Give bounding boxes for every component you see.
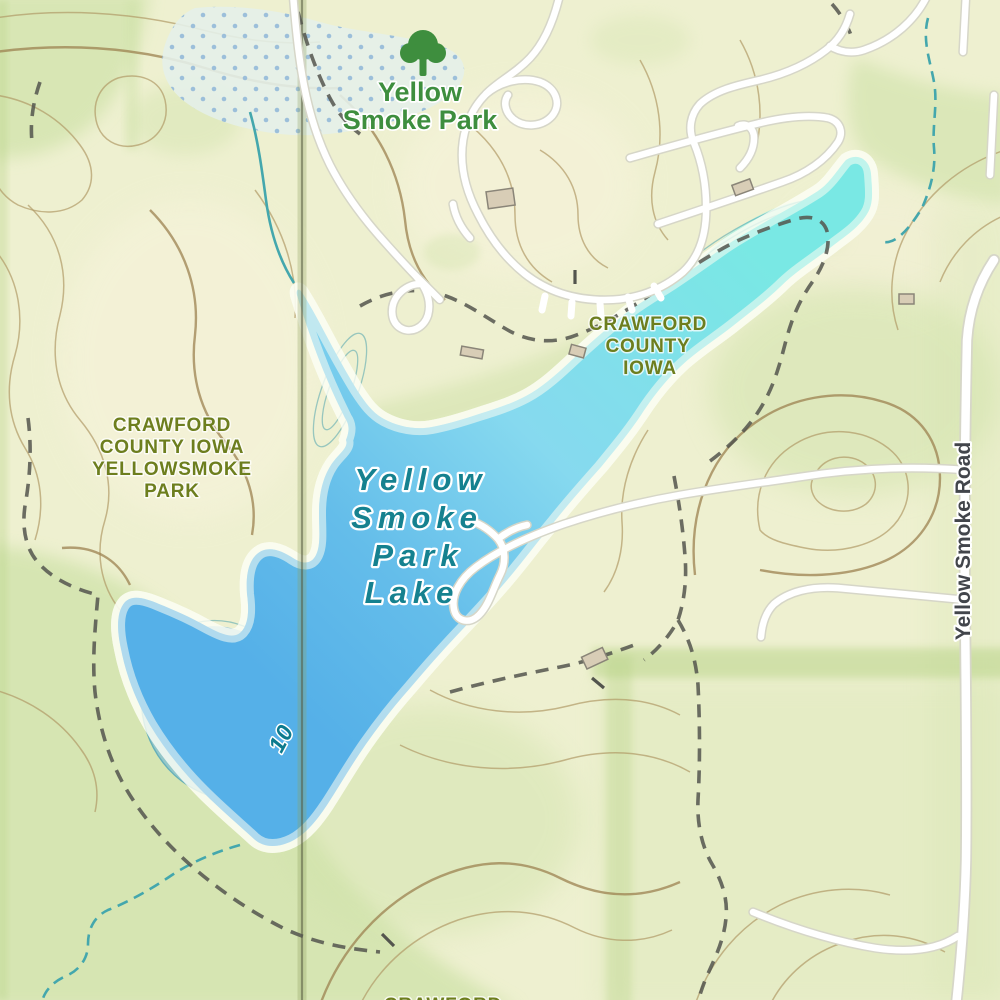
park-name-label-line1: Yellow bbox=[378, 77, 463, 107]
map-canvas[interactable]: Yellow Smoke Park CRAWFORD COUNTY IOWA C… bbox=[0, 0, 1000, 1000]
road-name-label: Yellow Smoke Road bbox=[952, 442, 975, 640]
county-west-label-line4: PARK bbox=[144, 481, 200, 502]
topo-map: Yellow Smoke Park CRAWFORD COUNTY IOWA C… bbox=[0, 0, 1000, 1000]
building bbox=[899, 294, 914, 304]
county-ne-label-line3: IOWA bbox=[623, 358, 677, 379]
county-south-label-partial: CRAWFORD bbox=[384, 995, 502, 1000]
county-west-label-line1: CRAWFORD bbox=[113, 415, 231, 436]
county-ne-label-line1: CRAWFORD bbox=[589, 314, 707, 335]
building-shelter bbox=[486, 188, 515, 209]
park-name-label-line2: Smoke Park bbox=[343, 105, 499, 135]
lake-name-label-line1: Yellow bbox=[354, 462, 487, 497]
county-west-label-line2: COUNTY IOWA bbox=[100, 437, 245, 458]
lake-name-label-line4: Lake bbox=[365, 575, 460, 610]
lake-name-label-line3: Park bbox=[372, 538, 463, 573]
county-ne-label-line2: COUNTY bbox=[605, 336, 690, 357]
lake-name-label-line2: Smoke bbox=[351, 500, 483, 535]
county-west-label-line3: YELLOWSMOKE bbox=[92, 459, 252, 480]
